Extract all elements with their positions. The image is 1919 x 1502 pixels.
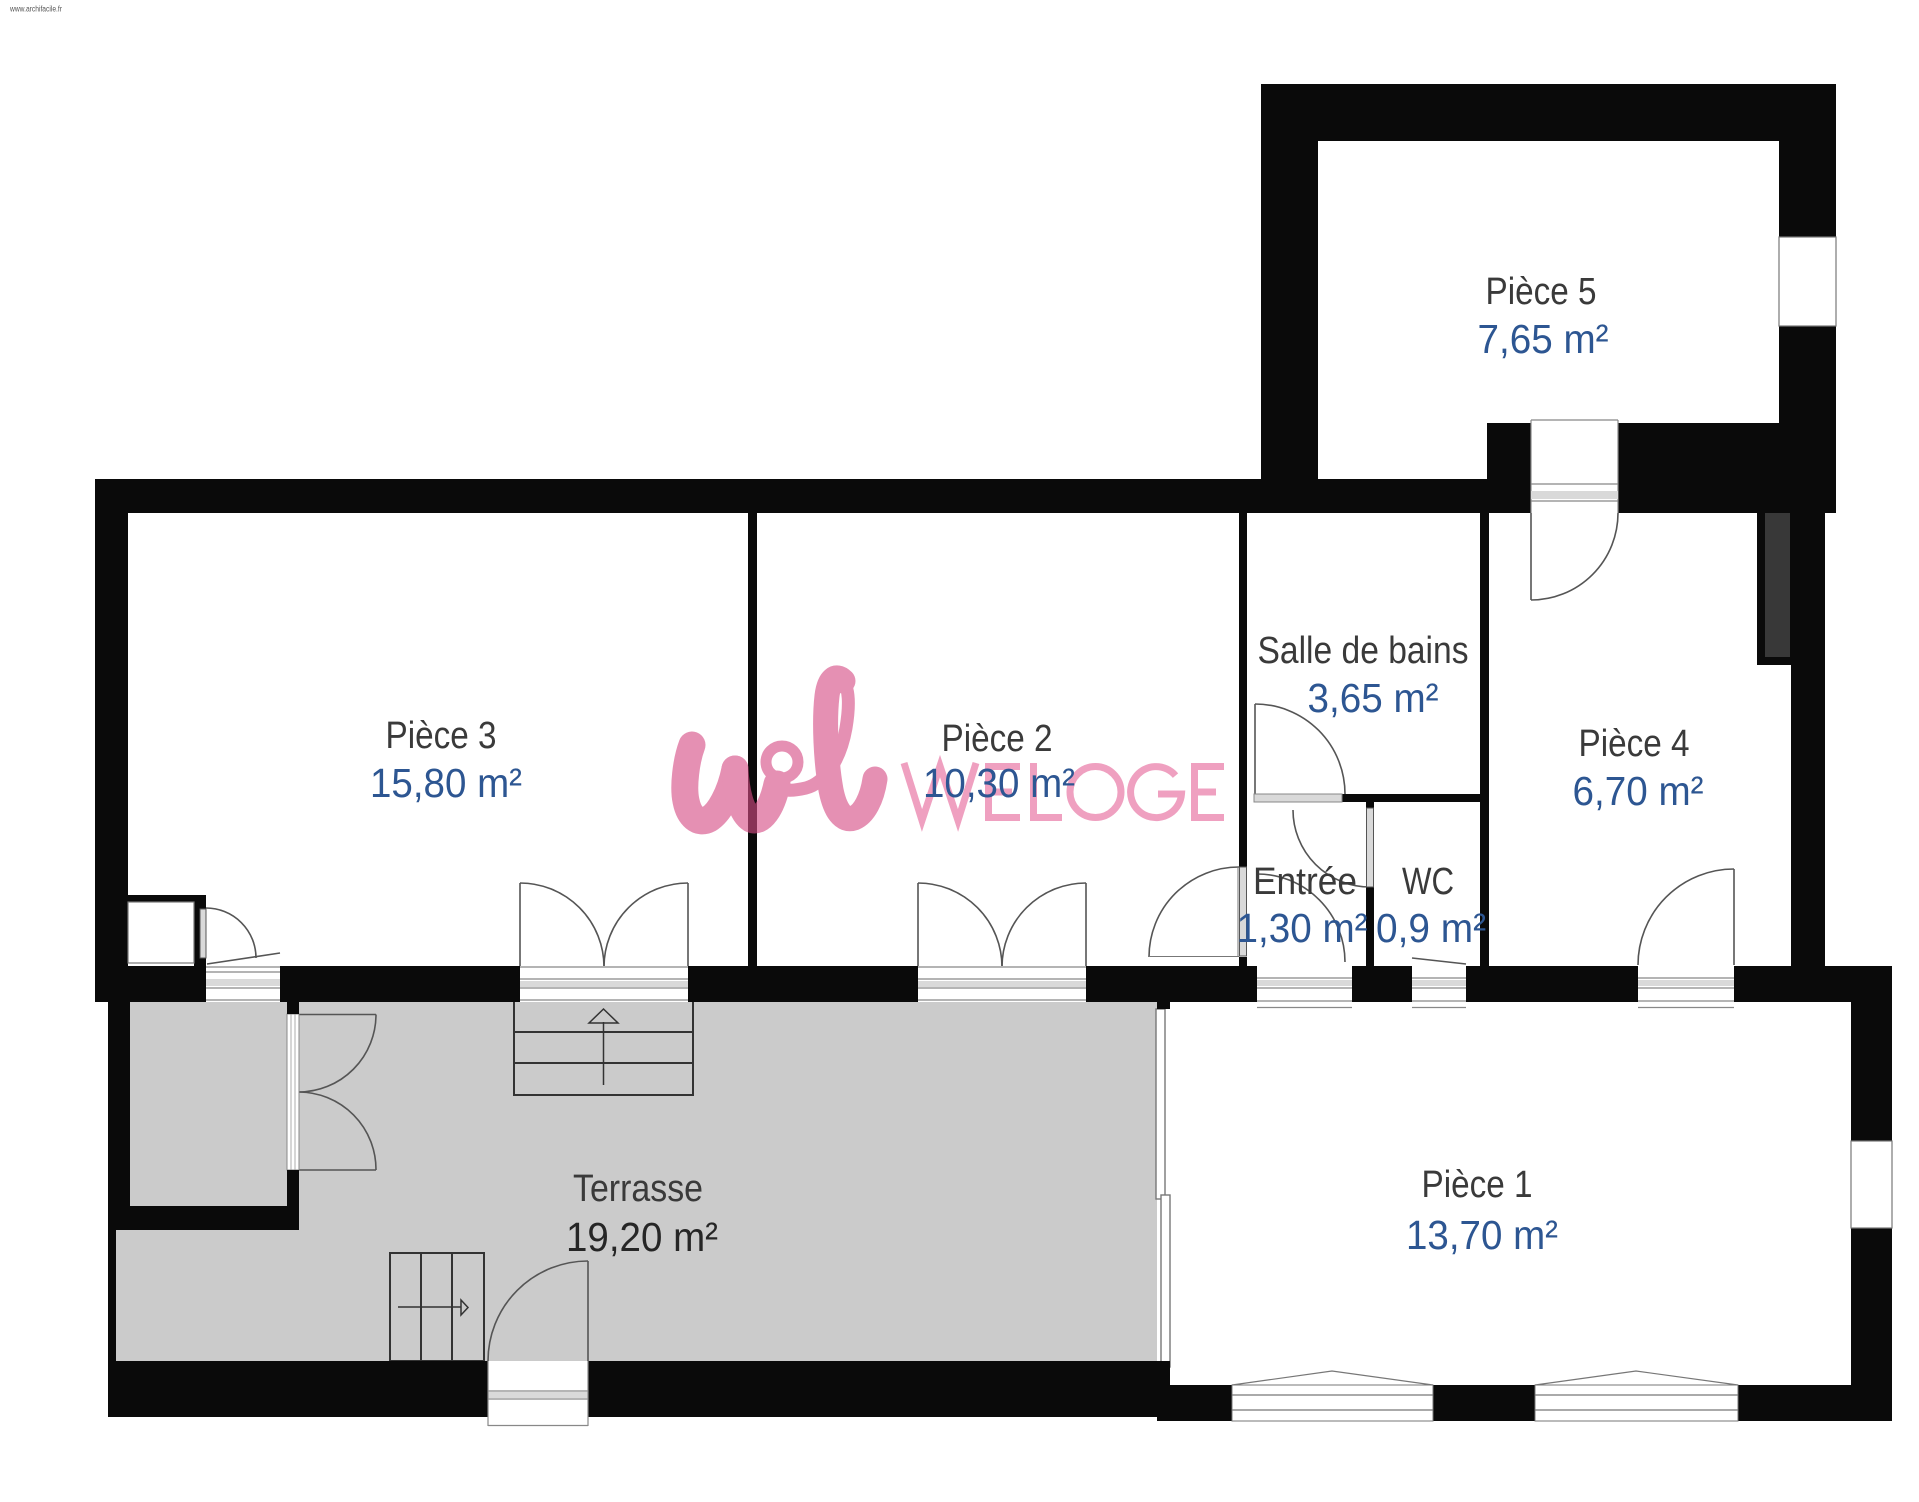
svg-text:10,30 m²: 10,30 m² — [923, 760, 1075, 806]
svg-text:www.archifacile.fr: www.archifacile.fr — [9, 5, 62, 14]
svg-text:13,70 m²: 13,70 m² — [1406, 1212, 1558, 1258]
svg-text:15,80 m²: 15,80 m² — [370, 760, 522, 806]
svg-text:7,65 m²: 7,65 m² — [1478, 316, 1609, 362]
svg-text:Pièce 1: Pièce 1 — [1422, 1164, 1533, 1206]
svg-text:1,30 m²: 1,30 m² — [1237, 905, 1368, 951]
svg-text:Pièce 3: Pièce 3 — [386, 715, 497, 757]
svg-text:6,70 m²: 6,70 m² — [1573, 768, 1704, 814]
svg-text:Pièce 5: Pièce 5 — [1486, 271, 1597, 313]
svg-text:Pièce 4: Pièce 4 — [1579, 723, 1690, 765]
svg-text:3,65 m²: 3,65 m² — [1308, 675, 1439, 721]
svg-text:0,9 m²: 0,9 m² — [1376, 905, 1486, 951]
svg-text:Salle de bains: Salle de bains — [1258, 630, 1469, 672]
svg-text:WC: WC — [1402, 861, 1454, 903]
svg-text:Terrasse: Terrasse — [573, 1168, 703, 1210]
svg-text:Pièce 2: Pièce 2 — [942, 718, 1053, 760]
svg-text:Entrée: Entrée — [1253, 861, 1357, 903]
svg-text:19,20 m²: 19,20 m² — [566, 1214, 718, 1260]
